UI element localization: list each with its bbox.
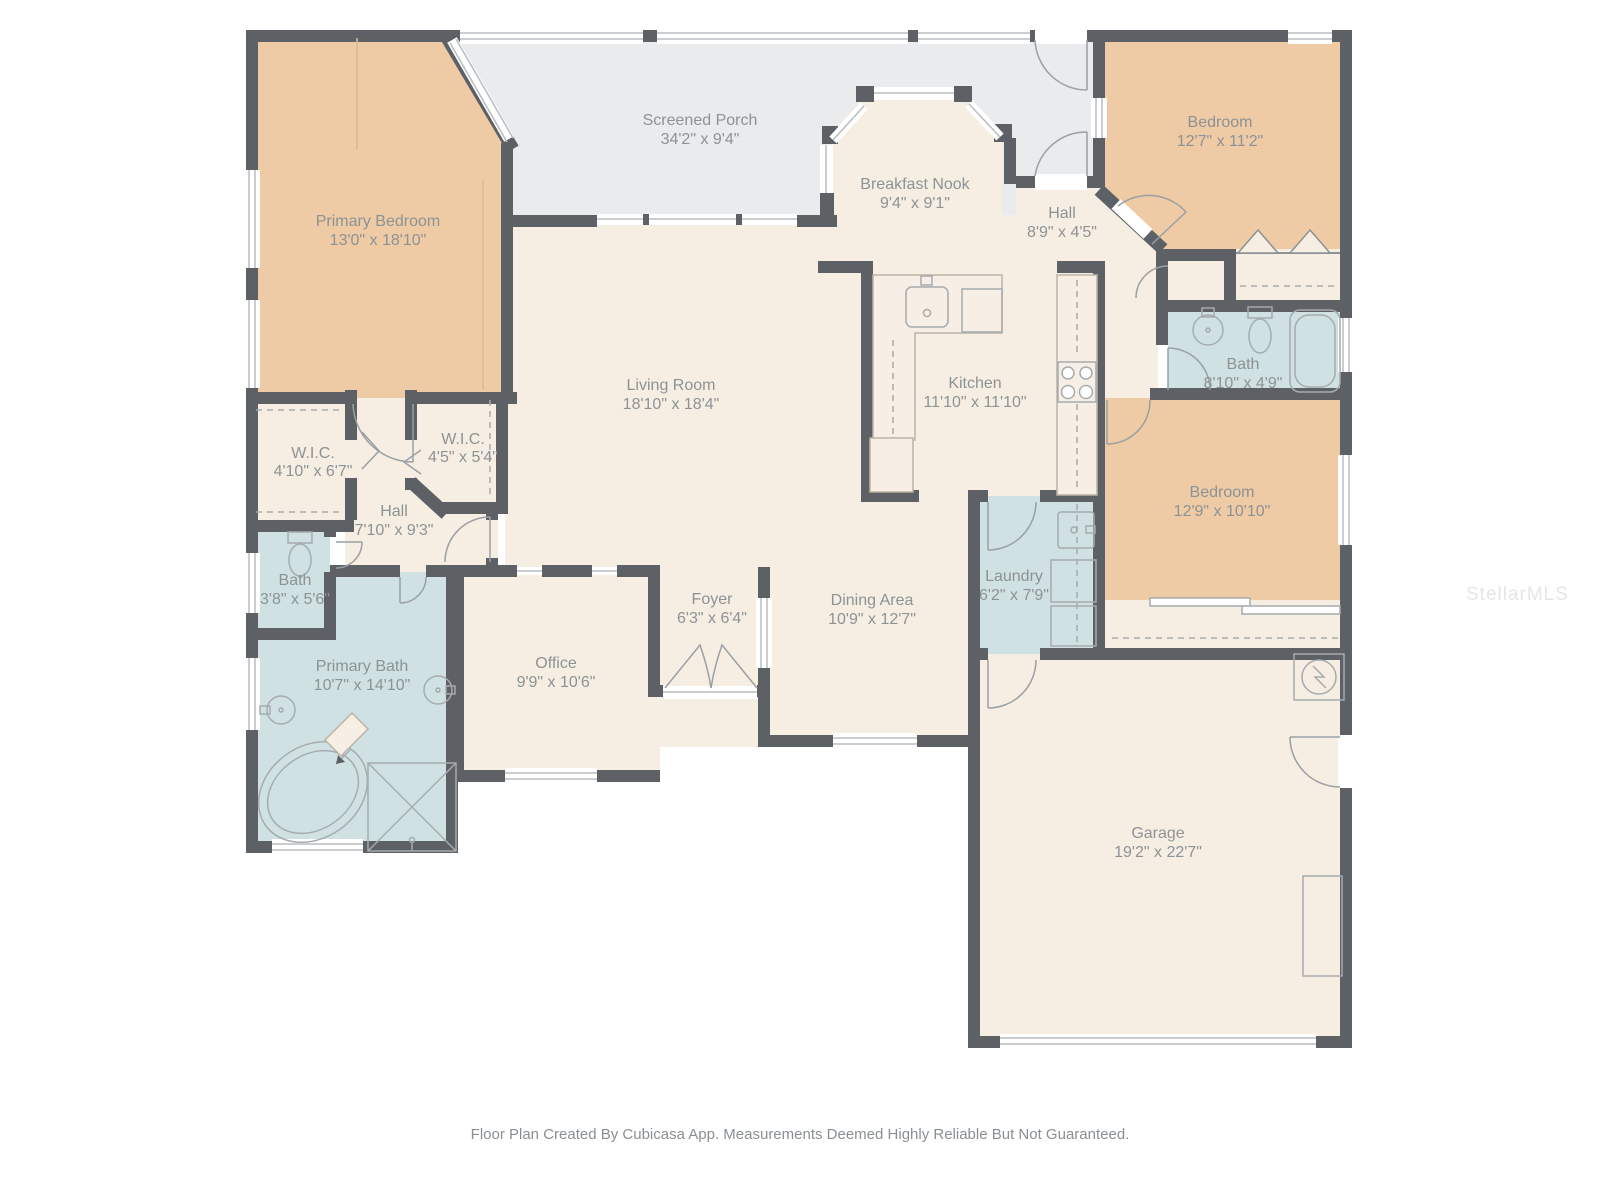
room-dims: 12'9" x 10'10" bbox=[1174, 503, 1271, 520]
room-label: Bath bbox=[1227, 356, 1260, 373]
kitchen-cabinet bbox=[870, 438, 913, 492]
room-dims: 7'10" x 9'3" bbox=[355, 522, 434, 539]
floor-plan-page: Screened Porch 34'2" x 9'4" Primary Bedr… bbox=[0, 0, 1600, 1200]
room-dims: 13'0" x 18'10" bbox=[330, 232, 427, 249]
room-label: Breakfast Nook bbox=[860, 176, 970, 193]
room-dims: 12'7" x 11'2" bbox=[1177, 133, 1264, 150]
room-label: Hall bbox=[380, 503, 408, 520]
room-label: Office bbox=[535, 655, 577, 672]
room-label: Hall bbox=[1048, 205, 1076, 222]
room-label: Dining Area bbox=[831, 592, 914, 609]
room-label: Bath bbox=[279, 572, 312, 589]
room-dims: 34'2" x 9'4" bbox=[661, 131, 740, 148]
footer-disclaimer: Floor Plan Created By Cubicasa App. Meas… bbox=[0, 1126, 1600, 1143]
room-label: Screened Porch bbox=[643, 112, 758, 129]
room-dims: 4'10" x 6'7" bbox=[274, 463, 353, 480]
room-label: W.I.C. bbox=[441, 431, 485, 448]
room-dims: 6'3" x 6'4" bbox=[677, 610, 747, 627]
room-dims: 9'4" x 9'1" bbox=[880, 195, 950, 212]
room-dims: 4'5" x 5'4" bbox=[428, 449, 498, 466]
room-dims: 8'9" x 4'5" bbox=[1027, 224, 1097, 241]
room-dims: 11'10" x 11'10" bbox=[923, 394, 1026, 411]
room-label: W.I.C. bbox=[291, 445, 335, 462]
room-label: Bedroom bbox=[1188, 114, 1253, 131]
room-dims: 19'2" x 22'7" bbox=[1114, 844, 1202, 861]
room-dims: 8'10" x 4'9" bbox=[1204, 375, 1283, 392]
stellar-mls-watermark: StellarMLS bbox=[1466, 584, 1569, 606]
room-label: Bedroom bbox=[1190, 484, 1255, 501]
room-dims: 9'9" x 10'6" bbox=[517, 674, 596, 691]
room-dims: 6'2" x 7'9" bbox=[979, 587, 1049, 604]
room-label: Living Room bbox=[627, 377, 716, 394]
sliding-closet-door-icon bbox=[1150, 598, 1250, 606]
room-label: Primary Bath bbox=[316, 658, 408, 675]
room-label: Kitchen bbox=[948, 375, 1001, 392]
room-fills bbox=[246, 36, 1352, 1048]
room-dims: 18'10" x 18'4" bbox=[623, 396, 720, 413]
floor-plan-drawing: Screened Porch 34'2" x 9'4" Primary Bedr… bbox=[0, 0, 1600, 1200]
room-dims: 3'8" x 5'6" bbox=[260, 591, 330, 608]
room-label: Laundry bbox=[985, 568, 1043, 585]
room-label: Garage bbox=[1131, 825, 1184, 842]
room-label: Primary Bedroom bbox=[316, 213, 440, 230]
room-dims: 10'9" x 12'7" bbox=[828, 611, 916, 628]
room-label: Foyer bbox=[692, 591, 734, 608]
room-dims: 10'7" x 14'10" bbox=[314, 677, 411, 694]
sliding-closet-door-icon bbox=[1242, 606, 1340, 614]
